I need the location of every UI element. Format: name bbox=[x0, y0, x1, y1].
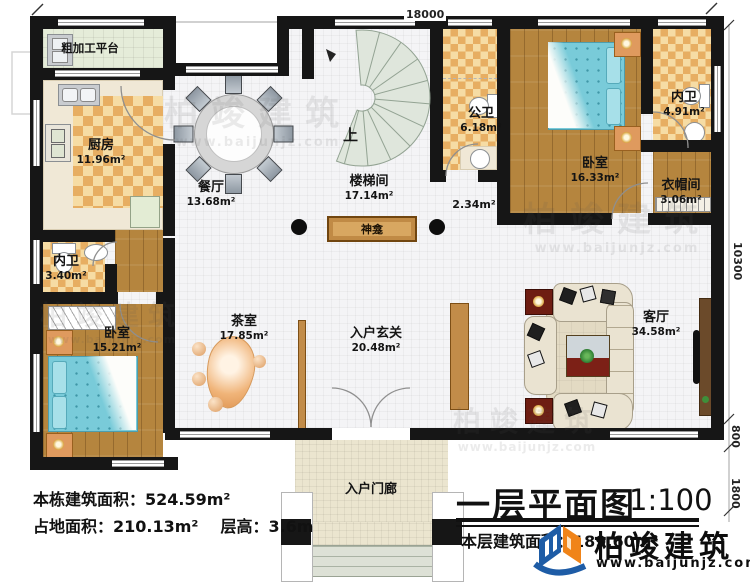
room-name: 楼梯间 bbox=[345, 174, 394, 190]
room-area: 34.58m² bbox=[632, 326, 681, 339]
room-area: 3.06m² bbox=[660, 194, 701, 207]
room-label-porch: 入户门廊 bbox=[345, 482, 397, 498]
dim-bay: 800 bbox=[729, 425, 742, 448]
room-name: 卧室 bbox=[93, 326, 142, 342]
room-area: 4.91m² bbox=[663, 106, 704, 119]
footprint-text: 占地面积：210.13m²层高：3.6m bbox=[33, 513, 313, 537]
corridor-area-label: 2.34m² bbox=[452, 198, 495, 211]
room-area: 13.68m² bbox=[187, 196, 236, 209]
brand-logo-icon bbox=[531, 516, 589, 578]
room-label-cloakroom: 衣帽间 3.06m² bbox=[660, 178, 701, 206]
room-label-foyer: 入户玄关 20.48m² bbox=[350, 326, 402, 354]
room-area: 17.14m² bbox=[345, 190, 394, 203]
floor-plan-page: 神龛 bbox=[0, 0, 750, 588]
floor-height-value: 层高：3.6m bbox=[220, 517, 313, 536]
brand-url: www.baijunjz.com bbox=[596, 556, 750, 571]
room-name: 衣帽间 bbox=[660, 178, 701, 194]
room-name: 卧室 bbox=[571, 156, 620, 172]
area-value: 2.34m² bbox=[452, 198, 495, 211]
room-label-dining: 餐厅 13.68m² bbox=[187, 180, 236, 208]
room-label-stairwell: 楼梯间 17.14m² bbox=[345, 174, 394, 202]
room-area: 15.21m² bbox=[93, 342, 142, 355]
room-label-platform: 粗加工平台 bbox=[61, 42, 119, 56]
room-name: 粗加工平台 bbox=[61, 42, 119, 56]
plan-scale: 1:100 bbox=[629, 483, 713, 517]
room-label-bedroom-tr: 卧室 16.33m² bbox=[571, 156, 620, 184]
room-label-bedroom-left: 卧室 15.21m² bbox=[93, 326, 142, 354]
room-label-bath-tr: 内卫 4.91m² bbox=[663, 90, 704, 118]
room-name: 内卫 bbox=[45, 254, 86, 270]
room-area: 3.40m² bbox=[45, 270, 86, 283]
room-area: 11.96m² bbox=[77, 154, 126, 167]
room-name: 客厅 bbox=[632, 310, 681, 326]
room-label-kitchen: 厨房 11.96m² bbox=[77, 138, 126, 166]
footprint-value: 占地面积：210.13m² bbox=[33, 517, 198, 536]
room-area: 20.48m² bbox=[350, 342, 402, 355]
room-name: 公卫 bbox=[460, 106, 501, 122]
room-name: 茶室 bbox=[220, 314, 269, 330]
room-area: 6.18m² bbox=[460, 122, 501, 135]
room-name: 餐厅 bbox=[187, 180, 236, 196]
room-area: 17.85m² bbox=[220, 330, 269, 343]
room-label-living-room: 客厅 34.58m² bbox=[632, 310, 681, 338]
room-name: 内卫 bbox=[663, 90, 704, 106]
building-area-text: 本栋建筑面积：524.59m² bbox=[33, 486, 230, 510]
stairs-up-label: 上 bbox=[343, 124, 358, 145]
dim-top: 18000 bbox=[404, 8, 446, 21]
room-name: 入户门廊 bbox=[345, 482, 397, 498]
dim-porch: 1800 bbox=[729, 478, 742, 509]
room-label-public-bath: 公卫 6.18m² bbox=[460, 106, 501, 134]
room-label-bath-left: 内卫 3.40m² bbox=[45, 254, 86, 282]
room-area: 16.33m² bbox=[571, 172, 620, 185]
dim-right: 10300 bbox=[731, 242, 744, 280]
room-name: 厨房 bbox=[77, 138, 126, 154]
room-label-tea-room: 茶室 17.85m² bbox=[220, 314, 269, 342]
room-name: 入户玄关 bbox=[350, 326, 402, 342]
